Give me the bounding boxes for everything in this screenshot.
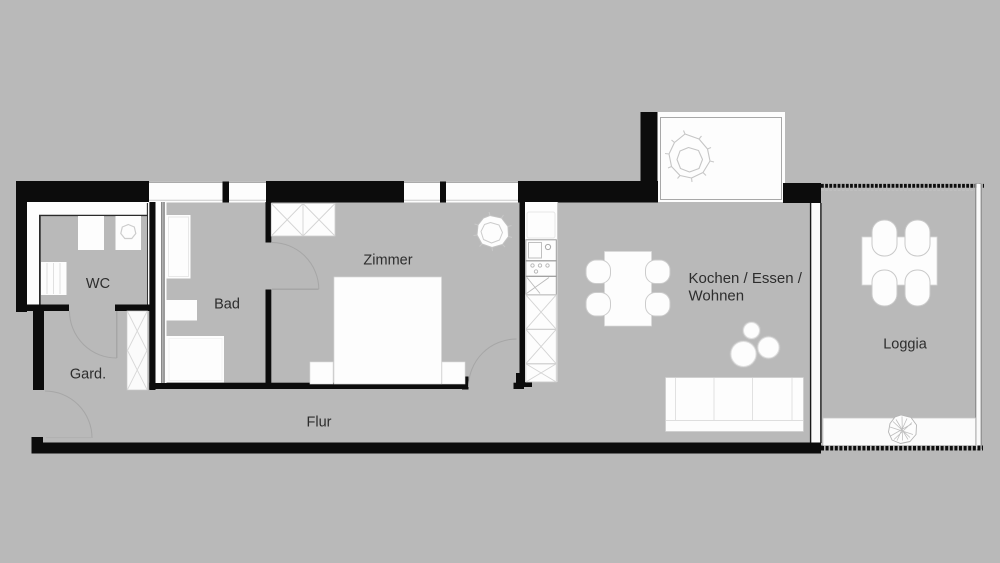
svg-text:Zimmer: Zimmer — [363, 252, 412, 268]
svg-text:Bad: Bad — [214, 297, 240, 313]
svg-text:Wohnen: Wohnen — [689, 287, 745, 304]
svg-text:Gard.: Gard. — [70, 367, 106, 383]
svg-text:Flur: Flur — [307, 415, 332, 431]
svg-text:WC: WC — [86, 276, 110, 292]
svg-text:Kochen / Essen /: Kochen / Essen / — [689, 270, 803, 287]
svg-text:Loggia: Loggia — [883, 337, 927, 353]
